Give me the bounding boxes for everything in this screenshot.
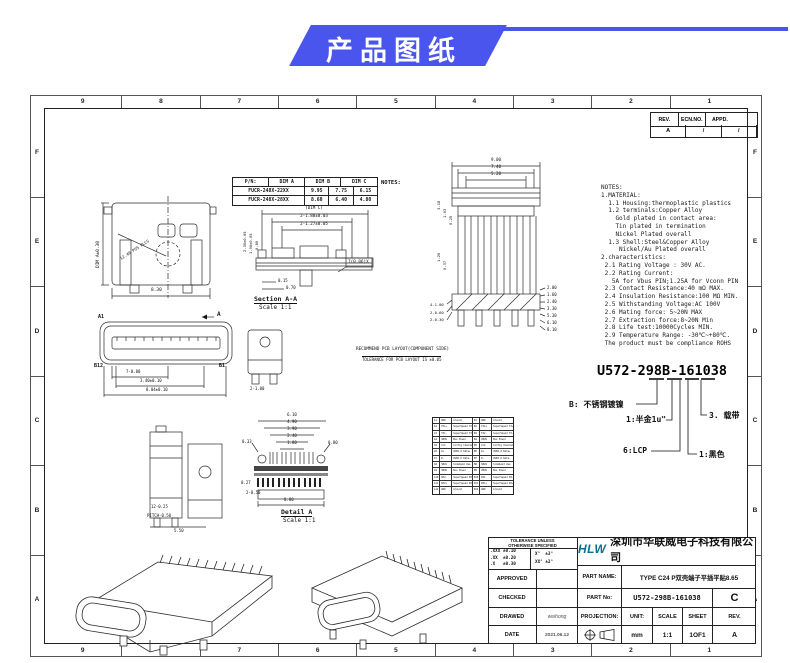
company-logo: HLW xyxy=(578,542,606,556)
notes-line: 1.1 Housing:thermoplastic plastics xyxy=(601,200,759,208)
dim-label: 0.80 xyxy=(328,441,338,445)
dim-label: 6.10 xyxy=(547,319,557,326)
section-arrow-label: A xyxy=(217,312,221,319)
front-view-drawing xyxy=(101,196,216,299)
callout-color-label: 1:黑色 xyxy=(699,449,725,460)
notes-line: 2.9 Temperature Range: -30℃~+80℃. xyxy=(601,332,759,340)
dim-label: 8.10 xyxy=(547,326,557,333)
notes-line: Gold plated in contact area: xyxy=(601,215,759,223)
notes-line: Nickel Plated overall xyxy=(601,231,759,239)
pcb-caption: RECOMMEND PCB LAYOUT(COMPONENT SIDE) xyxy=(356,348,449,353)
part-number-callout: U572-298B-161038 xyxy=(597,363,727,379)
pn-header-cell: DIM A xyxy=(269,178,305,186)
approved-value xyxy=(537,570,578,589)
part-name-value: TYPE C24 P双壳端子平插平贴8.65 xyxy=(622,566,756,589)
dim-label: 6.10 xyxy=(287,411,297,418)
checked-label: CHECKED xyxy=(488,589,537,608)
pin-b1-label: B1 xyxy=(219,364,225,370)
size-value: C xyxy=(713,589,756,608)
dim-label: 2.00 xyxy=(547,284,557,291)
notes-line: 2.6 Mating force: 5~20N MAX xyxy=(601,309,759,317)
company-name-row: HLW 深圳市华联威电子科技有限公司 xyxy=(578,537,756,565)
side-view-drawing xyxy=(150,426,222,527)
date-label: DATE xyxy=(488,626,537,644)
pn-header-cell: P/N: xyxy=(233,178,269,186)
notes-line: Nickel/Au Plated overall xyxy=(601,246,759,254)
dim-label: 1.60 xyxy=(547,291,557,298)
pn-notes-label: NOTES: xyxy=(381,180,401,186)
dim-label: 3.90 xyxy=(287,425,297,432)
notes-line: 2.7 Extraction force:8~20N Min xyxy=(601,317,759,325)
unit-label: UNIT: xyxy=(622,608,653,626)
dim-label: 2-1.00 xyxy=(250,387,264,391)
third-angle-projection-icon xyxy=(583,628,617,642)
revision-value-cell: / xyxy=(722,125,757,137)
dim-label: PITCH-0.50 xyxy=(147,514,171,518)
section-top-dims: (DIM C)2-1.88±0.032-1.27±0.05 xyxy=(260,204,368,228)
part-no-label: PART No: xyxy=(578,589,622,608)
company-name-cn: 深圳市华联威电子科技有限公司 xyxy=(610,537,756,565)
pin-a1-label: A1 xyxy=(98,315,104,321)
notes-line: 5A for Vbus PIN;1.25A for Vconn PIN xyxy=(601,278,759,286)
dim-label: (DIM C) xyxy=(305,204,323,212)
notes-line: The product must be compliance ROHS xyxy=(601,340,759,348)
dim-label: 7.40 xyxy=(491,163,501,170)
company-block: HLW 深圳市华联威电子科技有限公司 HUA LIAN WEI TECHNOLO… xyxy=(578,537,756,566)
dim-label: 5.20 xyxy=(491,170,501,177)
dim-label: 0.37 xyxy=(443,261,447,270)
dim-label: 1.90±0.05 xyxy=(249,233,253,254)
dim-label: 1.20 xyxy=(437,253,441,262)
pin-table: A1 GND Ground B1 GND Ground A2 TX1+ Supe… xyxy=(432,417,514,495)
notes-line: 2.8 Life test:10000Cycles MIN. xyxy=(601,324,759,332)
dim-label: 3.40±0.10 xyxy=(140,379,162,383)
notes-line: 2.5 Withstanding Voltage:AC 100V xyxy=(601,301,759,309)
dim-label: 2.30±0.05 xyxy=(243,231,247,252)
dim-label: 8.04±0.10 xyxy=(146,388,168,392)
dim-label: 1.03 xyxy=(443,209,447,218)
projection-symbol-cell xyxy=(578,626,622,644)
pn-rows: FUCR-248X-22XX 9.95 7.75 6.15 FUCR-248X-… xyxy=(233,187,377,205)
pcb-bottom-dims: 4-1.002-0.602-0.30 xyxy=(430,301,460,324)
pn-header-row: P/N:DIM ADIM BDIM C xyxy=(233,178,377,187)
dim-label: 5.30 xyxy=(547,312,557,319)
tolerance-angular: X° ±3°XX° ±2° xyxy=(531,549,578,570)
approved-label: APPROVED xyxy=(488,570,537,589)
dim-label: 2-0.60 xyxy=(430,309,444,317)
dim-label: 0.80 xyxy=(255,241,259,250)
drawed-value: weihong xyxy=(537,608,578,626)
notes-line: 1.2 terminals:Copper Alloy xyxy=(601,207,759,215)
notes-block: NOTES:1.MATERIAL: 1.1 Housing:thermoplas… xyxy=(601,184,759,348)
notes-line: 2.2 Rating Current: xyxy=(601,270,759,278)
detail-scale: Scale 1:1 xyxy=(283,517,316,524)
section-title: Section A-A xyxy=(254,295,297,304)
dim-label: 2-1.88±0.03 xyxy=(300,212,328,220)
sheet-value: 1OF1 xyxy=(683,626,713,644)
dim-label: 2-1.27±0.05 xyxy=(300,220,328,228)
dim-label: 0.33 xyxy=(242,440,252,444)
sheet-label: SHEET xyxy=(683,608,713,626)
pcb-top-dims: 9.007.405.20 xyxy=(452,156,540,177)
notes-line: Tin plated in termination xyxy=(601,223,759,231)
notes-line: 1.3 Shell:Steel&Copper Alloy xyxy=(601,239,759,247)
notes-line: NOTES: xyxy=(601,184,759,192)
dim-label: 7-0.80 xyxy=(126,370,140,374)
notes-line: 2.characteristics: xyxy=(601,254,759,262)
rev-label: REV. xyxy=(713,608,756,626)
pn-row: FUCR-248X-22XX 9.95 7.75 6.15 xyxy=(233,187,377,196)
pin-table-row: A12 GND Ground B12 GND Ground xyxy=(433,487,513,493)
revision-value-cell: A xyxy=(651,125,686,137)
revision-value-row: A// xyxy=(650,125,758,138)
dim-label: DIM A±0.30 xyxy=(97,241,102,268)
dim-label: 0.15 xyxy=(278,279,288,283)
section-scale: Scale 1:1 xyxy=(259,304,292,311)
dim-label: 12-0.25 xyxy=(151,505,168,509)
dim-label: 8.80 xyxy=(284,498,294,502)
pcb-tolerance-caption: TOLERANCE FOR PCB LAYOUT IS ±0.05 xyxy=(362,356,441,362)
dim-label: 5.50 xyxy=(174,529,184,533)
product-drawing-page: 产品图纸 987654321 987654321 FEDCBA FEDCBA xyxy=(0,0,790,663)
tolerance-title: TOLERANCE UNLESS OTHERWISE SPECIFIED xyxy=(488,537,578,549)
dim-label: 4.90 xyxy=(287,418,297,425)
dim-label: 8.30 xyxy=(151,289,162,294)
dim-label: 2-0.30 xyxy=(430,316,444,324)
drawed-label: DRAWED xyxy=(488,608,537,626)
dim-label: 0.70 xyxy=(286,286,296,290)
callout-material-label: 6:LCP xyxy=(623,446,647,455)
pn-header-cell: DIM B xyxy=(305,178,341,186)
dim-label: 3.30 xyxy=(547,305,557,312)
dim-label: 1.80 xyxy=(287,439,297,446)
notes-line: 2.4 Insulation Resistance:100 MΩ MIN. xyxy=(601,293,759,301)
checked-value xyxy=(537,589,578,608)
dim-label: 2-0.50 xyxy=(246,491,260,495)
rev-value: A xyxy=(713,626,756,644)
part-name-label: PART NAME: xyxy=(578,566,622,589)
face-view-drawing xyxy=(100,315,282,398)
callout-shell-label: B: 不锈钢镀镍 xyxy=(569,399,623,410)
projection-label: PROJECTION: xyxy=(578,608,622,626)
dim-label: 2.40 xyxy=(547,298,557,305)
scale-label: SCALE xyxy=(653,608,683,626)
pn-dimension-table: P/N:DIM ADIM BDIM C FUCR-248X-22XX 9.95 … xyxy=(232,177,378,206)
unit-value: mm xyxy=(622,626,653,644)
dim-label: 9.00 xyxy=(491,156,501,163)
section-flag-label: 7(0.06)X xyxy=(348,261,369,266)
tolerance-linear: .XXX ±0.10.XX ±0.20.X ±0.30 xyxy=(488,549,531,570)
iso-view-right xyxy=(312,551,462,649)
pcb-right-dims: 2.001.602.403.305.306.108.10 xyxy=(547,284,597,333)
dim-label: 0.27 xyxy=(241,481,251,485)
notes-line: 1.MATERIAL: xyxy=(601,192,759,200)
iso-view-left xyxy=(74,555,272,655)
notes-line: 2.1 Rating Voltage : 30V AC. xyxy=(601,262,759,270)
dim-label: 3.18 xyxy=(437,201,441,210)
date-value: 2021.06.12 xyxy=(537,626,578,644)
pcb-view-drawing xyxy=(447,162,545,330)
callout-packing-label: 3. 载带 xyxy=(709,410,739,421)
detail-title: Detail A xyxy=(281,508,312,517)
detail-top-dims: 6.104.903.902.401.80 xyxy=(256,411,328,446)
pn-header-cell: DIM C xyxy=(341,178,377,186)
part-no-value: U572-298B-161038 xyxy=(622,589,713,608)
callout-plating-label: 1:半金1u" xyxy=(626,414,666,425)
pin-b12-label: B12 xyxy=(94,364,103,370)
dim-label: 2.40 xyxy=(287,432,297,439)
dim-label: 4-1.00 xyxy=(430,301,444,309)
revision-value-cell: / xyxy=(686,125,721,137)
dim-label: 0.25 xyxy=(449,216,453,225)
scale-value: 1:1 xyxy=(653,626,683,644)
notes-line: 2.3 Contact Resistance:40 mΩ MAX. xyxy=(601,285,759,293)
